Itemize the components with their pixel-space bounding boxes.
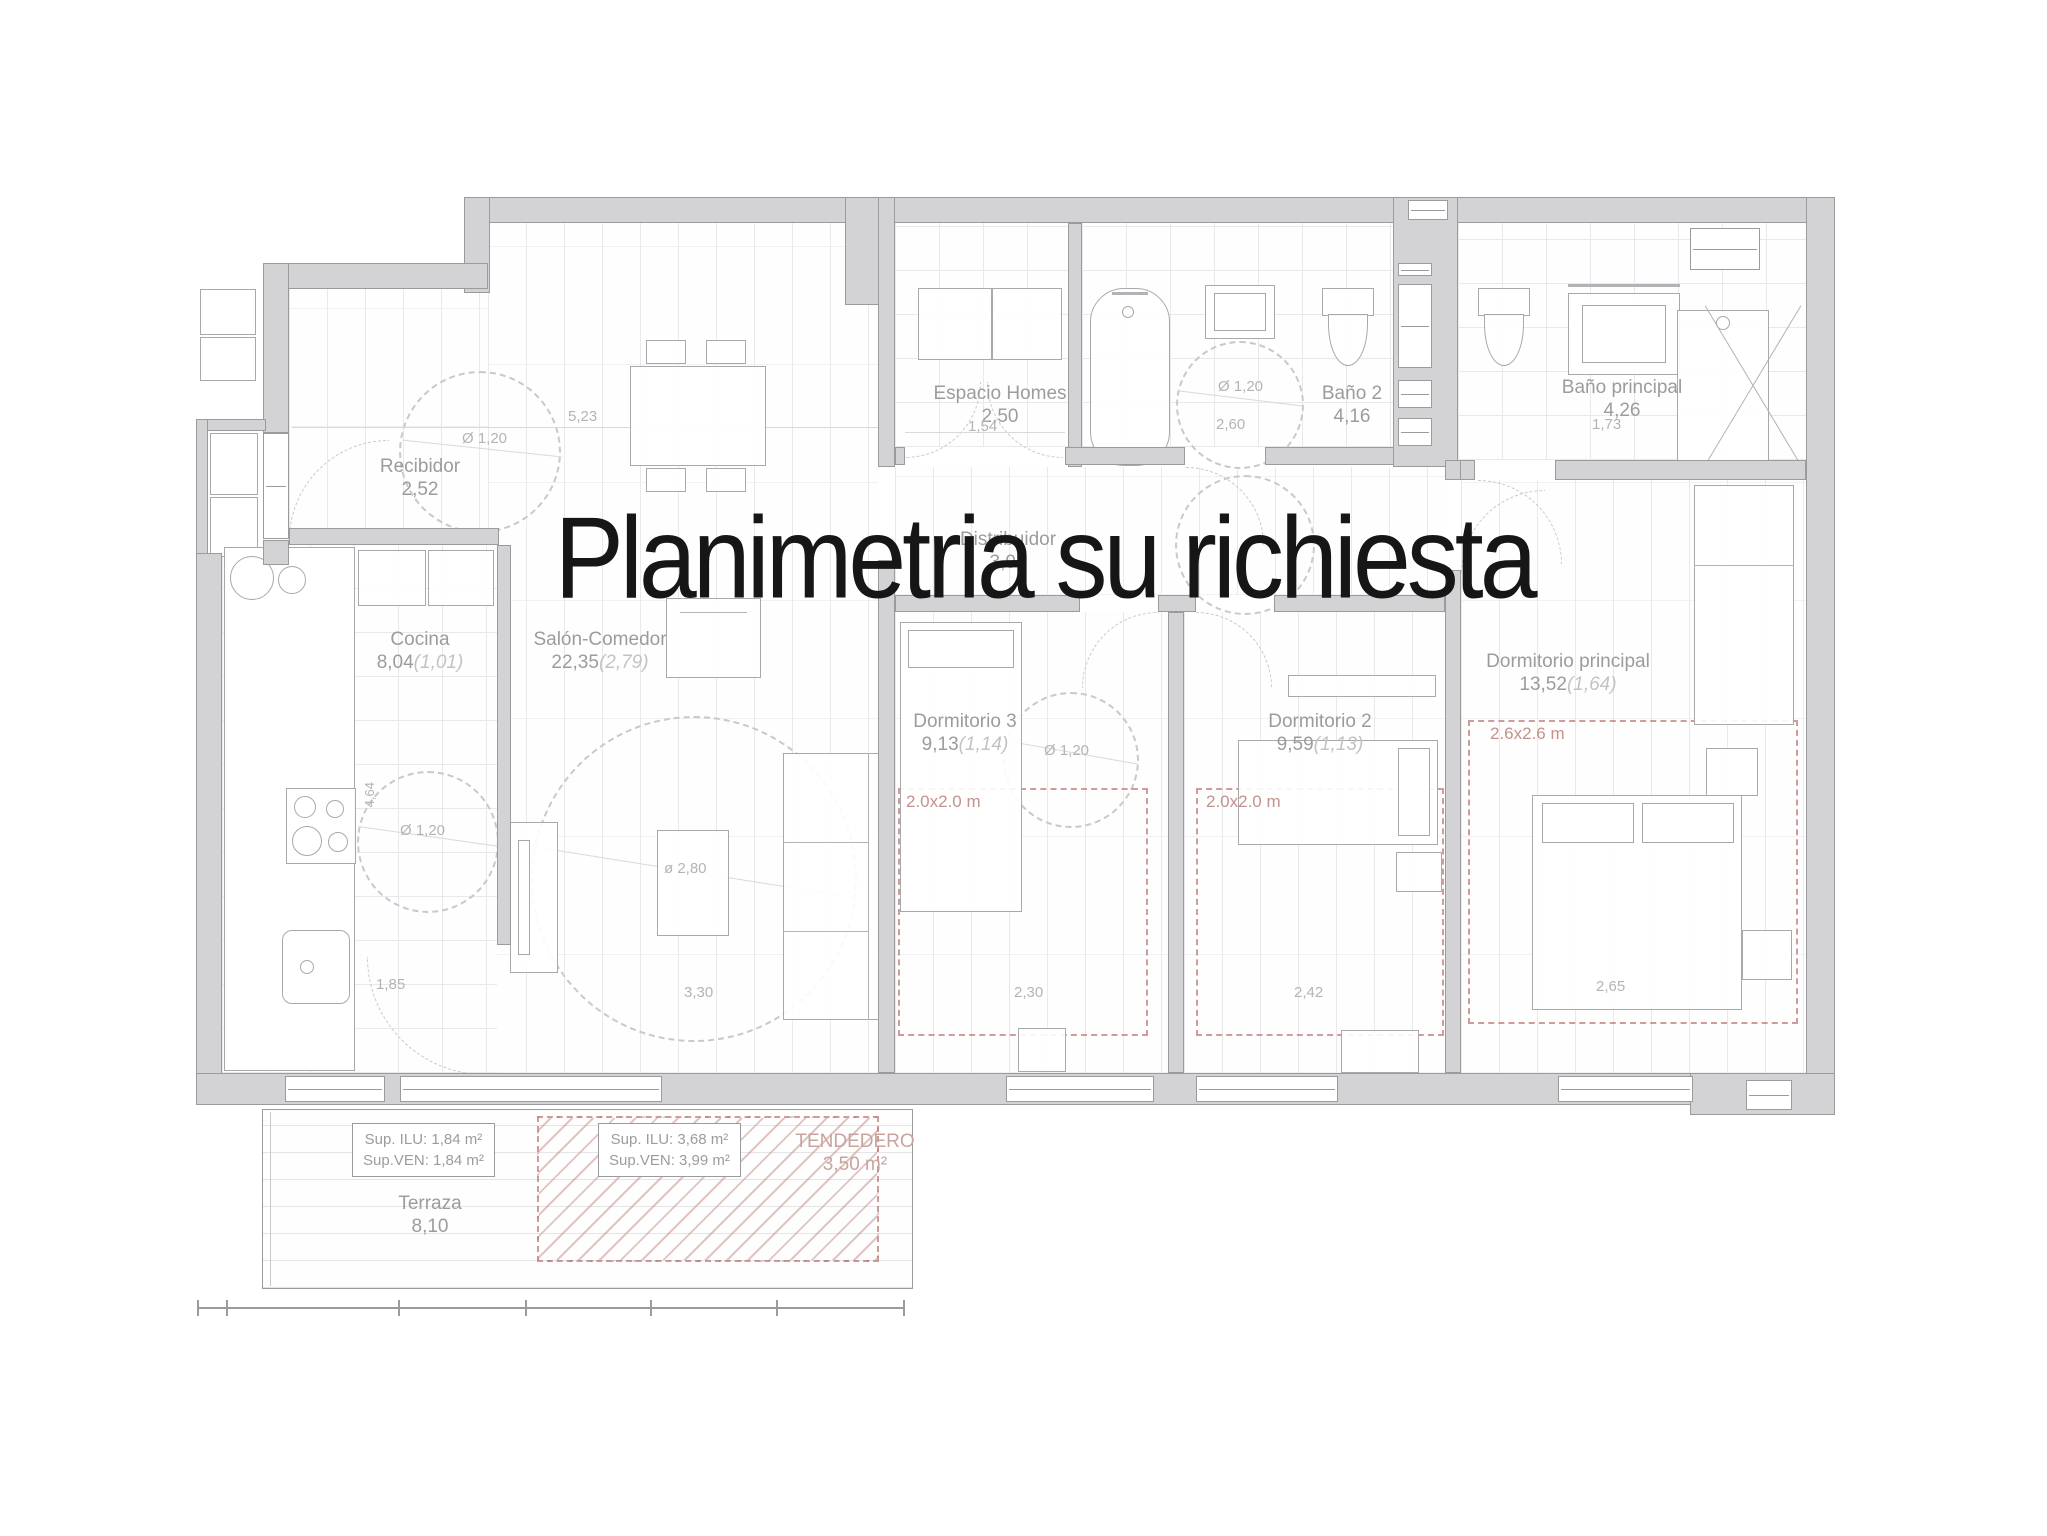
dim-bano2-circle: Ø 1,20 [1218,378,1263,395]
label-espacio-homes: Espacio Homes 2,50 [933,382,1066,428]
wall-recibidor-cocina [289,528,499,545]
entry-door-opening [263,433,289,539]
exterior-unit [1746,1080,1792,1110]
sofa [783,753,890,1020]
coffee-table [657,830,729,936]
wall-salon-dorm3 [878,560,895,1073]
terraza-name: Terraza [398,1192,461,1215]
dorm2-extra: (1,13) [1314,734,1364,755]
shaft-slot-top [1408,200,1448,220]
wall-dorm3-dorm2 [1168,612,1184,1073]
banop-wall-shelf [1690,228,1760,270]
surface-box-salon: Sup. ILU: 3,68 m² Sup.VEN: 3,99 m² [598,1123,741,1177]
dim-bano2-width: 2,60 [1216,416,1245,433]
dimension-line-bottom [197,1307,905,1309]
dormp-area: 13,52 [1519,674,1567,695]
nook-shelf [210,433,258,495]
closet-unit-2 [992,288,1062,360]
bathtub-drain [1122,306,1134,318]
dorm3-pillow [908,630,1014,668]
wall-hall-top-b [1065,447,1185,465]
label-bano2: Baño 2 4,16 [1322,382,1382,428]
bano2-name: Baño 2 [1322,382,1382,405]
wall-hall-top-c [1265,447,1395,465]
hob-burner-2 [326,800,344,818]
dim-dorm2-window: 2,42 [1294,984,1323,1001]
sup-ilu-terraza: Sup. ILU: 1,84 m² [363,1129,484,1150]
dim-salon-width: 5,23 [568,408,597,425]
tendedero-name: TENDEDERO [795,1130,914,1153]
banop-sink-basin [1582,305,1666,363]
wall-entry-left-low [263,540,289,565]
dim-tick-1 [197,1300,199,1316]
sofa-cushion-line-2 [783,931,868,932]
wall-entry-left [263,263,289,433]
recibidor-name: Recibidor [380,455,460,478]
dorm2-area-line: 9,59(1,13) [1268,733,1371,756]
terrace-railing-line [270,1112,271,1286]
dim-tick-2 [226,1300,228,1316]
dim-espacio-width: 1,54 [968,418,997,435]
sofa-cushion-line-1 [783,842,868,843]
shower-head [1716,316,1730,330]
dim-recibidor-circle: Ø 1,20 [462,430,507,447]
bano2-sink-basin [1214,293,1266,331]
label-bano-principal: Baño principal 4,26 [1562,376,1682,422]
shaft-slot-4 [1398,418,1432,446]
shaft-slot-1 [1398,263,1432,276]
cocina-area: 8,04 [377,652,414,673]
sup-ven-salon: Sup.VEN: 3,99 m² [609,1150,730,1171]
dim-dormp-window: 2,65 [1596,978,1625,995]
espacio-area: 2,50 [933,405,1066,428]
dim-dorm3-window: 2,30 [1014,984,1043,1001]
sup-ilu-salon: Sup. ILU: 3,68 m² [609,1129,730,1150]
label-salon: Salón-Comedor 22,35(2,79) [533,628,666,674]
dim-line-salon-width [292,427,878,428]
dormp-area-line: 13,52(1,64) [1486,673,1650,696]
wall-top-right [1434,197,1835,223]
sofa-backrest-line [868,753,869,1020]
banop-mirror [1568,284,1680,287]
dim-cocina-width: 1,85 [376,976,405,993]
surface-box-terraza: Sup. ILU: 1,84 m² Sup.VEN: 1,84 m² [352,1123,495,1177]
kitchen-appliance-1 [358,550,426,606]
dormp-name: Dormitorio principal [1486,650,1650,673]
dining-chair-1 [646,340,686,364]
espacio-name: Espacio Homes [933,382,1066,405]
dorm3-extra: (1,14) [959,734,1009,755]
meter-cabinet-2 [200,337,256,381]
window-cocina [285,1076,385,1102]
dining-chair-2 [706,340,746,364]
dorm2-area: 9,59 [1277,734,1314,755]
window-dormitorio3 [1006,1076,1154,1102]
terraza-area: 8,10 [398,1215,461,1238]
meter-cabinet-1 [200,289,256,335]
dormp-pillow-2 [1642,803,1734,843]
salon-extra: (2,79) [599,652,649,673]
salon-area-line: 22,35(2,79) [533,651,666,674]
bano2-area: 4,16 [1322,405,1382,428]
wall-salon-espacio [878,197,895,467]
closet-unit-1 [918,288,992,360]
dormp-pillow-1 [1542,803,1634,843]
wall-entry-top [263,263,488,289]
label-recibidor: Recibidor 2,52 [380,455,460,501]
label-tendedero: TENDEDERO 3,50 m² [795,1130,914,1176]
wall-right [1806,197,1835,1115]
dormp-extra: (1,64) [1567,674,1617,695]
wall-espacio-bano2 [1068,223,1082,467]
dormp-wardrobe-line [1694,565,1794,566]
cocina-name: Cocina [377,628,464,651]
dorm2-desk [1341,1030,1419,1073]
dim-tick-4 [525,1300,527,1316]
laundry-drum-2 [278,566,306,594]
hob-burner-4 [328,832,348,852]
dorm2-wardrobe [1288,675,1436,697]
recibidor-area: 2,52 [380,478,460,501]
dorm3-name: Dormitorio 3 [913,710,1016,733]
banop-area: 4,26 [1562,399,1682,422]
salon-name: Salón-Comedor [533,628,666,651]
sink-drain [300,960,314,974]
sup-ven-terraza: Sup.VEN: 1,84 m² [363,1150,484,1171]
dorm3-desk [1018,1028,1066,1072]
shaft-slot-3 [1398,380,1432,408]
wall-dorm2-principal-stub [1445,460,1461,480]
wall-nook-left [196,419,208,565]
kitchen-appliance-2 [428,550,494,606]
hob-burner-3 [292,826,322,856]
clearance-label-dormp: 2.6x2.6 m [1490,724,1565,744]
wall-dorm2-principal [1445,570,1461,1073]
dorm2-pillow [1398,748,1430,836]
label-dormitorio3: Dormitorio 3 9,13(1,14) [913,710,1016,756]
banop-toilet-tank [1478,288,1530,316]
dim-tick-6 [776,1300,778,1316]
turning-circle-recibidor [399,371,561,533]
dorm2-nightstand [1396,852,1442,892]
bathtub-faucet [1112,292,1148,295]
dorm3-area-line: 9,13(1,14) [913,733,1016,756]
clearance-label-dorm3: 2.0x2.0 m [906,792,981,812]
dining-table [630,366,766,466]
dim-salon-circle: ø 2,80 [664,860,707,877]
label-cocina: Cocina 8,04(1,01) [377,628,464,674]
tendedero-area: 3,50 m² [795,1153,914,1176]
dim-salon-window: 3,30 [684,984,713,1001]
dim-tick-3 [398,1300,400,1316]
window-salon-terrace-door [400,1076,662,1102]
dim-dorm3-circle: Ø 1,20 [1044,742,1089,759]
window-dormitorio2 [1196,1076,1338,1102]
wall-cocina-salon [497,545,511,945]
dorm3-area: 9,13 [922,734,959,755]
dormp-shelf [1706,748,1758,796]
wall-hall-top-a [895,447,905,465]
dining-chair-4 [706,468,746,492]
salon-area: 22,35 [551,652,599,673]
dormp-nightstand [1742,930,1792,980]
shaft-slot-2 [1398,284,1432,368]
cocina-extra: (1,01) [414,652,464,673]
kitchen-sink [282,930,350,1004]
dorm2-name: Dormitorio 2 [1268,710,1371,733]
dim-cocina-circle: Ø 1,20 [400,822,445,839]
label-dormitorio-principal: Dormitorio principal 13,52(1,64) [1486,650,1650,696]
banop-name: Baño principal [1562,376,1682,399]
wall-top-main [486,197,1436,223]
wall-left-kitchen [196,553,222,1105]
label-terraza: Terraza 8,10 [398,1192,461,1238]
window-dormitorio-principal [1558,1076,1693,1102]
dim-banop-width: 1,73 [1592,416,1621,433]
cocina-area-line: 8,04(1,01) [377,651,464,674]
label-dormitorio2: Dormitorio 2 9,59(1,13) [1268,710,1371,756]
tv-screen [518,840,530,955]
dim-tick-5 [650,1300,652,1316]
floorplan-canvas: 2.0x2.0 m 2.0x2.0 m 2.6x2.6 m Sup. ILU: … [0,0,2047,1536]
wall-banop-bottom-b [1555,460,1806,480]
dim-tick-7 [903,1300,905,1316]
hob-burner-1 [294,796,316,818]
clearance-label-dorm2: 2.0x2.0 m [1206,792,1281,812]
bano2-toilet-tank [1322,288,1374,316]
dormp-wardrobe [1694,485,1794,725]
dim-cocina-height: 4,64 [362,782,377,807]
page-title: Planimetria su richiesta [554,492,1533,625]
dining-chair-3 [646,468,686,492]
